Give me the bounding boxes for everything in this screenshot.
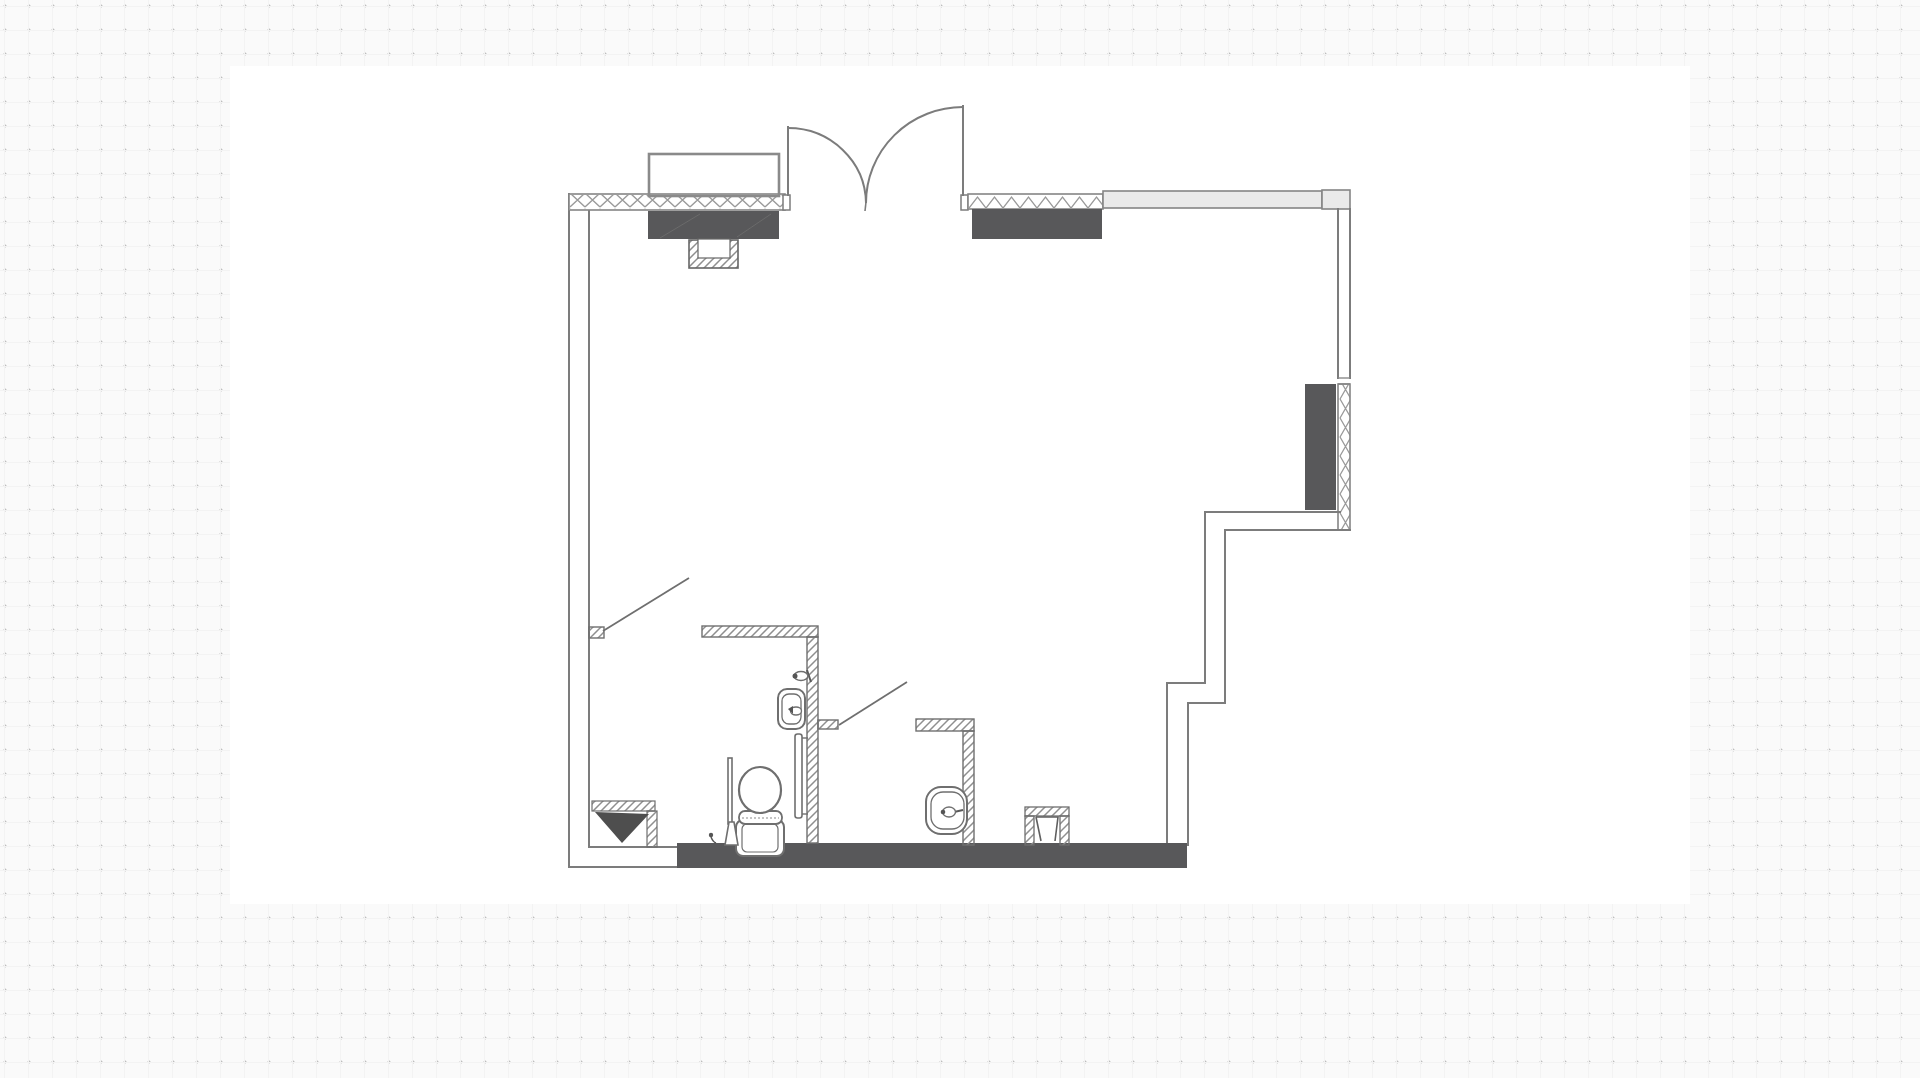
canvas-background[interactable] <box>0 0 1920 1078</box>
right-wall-window <box>1338 384 1350 530</box>
corner-shelf <box>592 801 657 847</box>
door-frame-right <box>961 195 968 210</box>
lintel-top-right <box>972 209 1102 239</box>
sink-1 <box>778 689 805 729</box>
wall-band-top-right <box>1103 190 1350 209</box>
door-arc-right <box>866 107 963 203</box>
door-meeting-tail <box>865 202 866 211</box>
toilet <box>736 767 784 856</box>
leader-line-1 <box>603 578 689 631</box>
door-frame-left <box>783 195 790 210</box>
leader-line-2 <box>839 682 907 725</box>
window-top-right <box>968 194 1103 209</box>
lintel-top-left <box>648 211 779 239</box>
right-wall <box>1338 209 1350 530</box>
double-entry-door <box>783 106 968 211</box>
wall-stub-left <box>589 627 604 638</box>
towel-rail <box>795 734 808 818</box>
floor-hook <box>709 833 716 843</box>
toilet-bowl <box>739 767 781 813</box>
balcony-outline <box>649 154 779 196</box>
wall-stub-right <box>818 720 838 729</box>
floor-plan-svg <box>0 0 1920 1078</box>
exterior-walls <box>569 194 678 867</box>
stool-niche <box>1025 807 1069 845</box>
door-arc-left <box>788 128 866 203</box>
dark-panel-right <box>1305 384 1336 510</box>
sink-2 <box>926 787 967 834</box>
duct-top-left <box>689 239 738 268</box>
floor-plan[interactable] <box>569 106 1350 868</box>
stepped-wall-right <box>1167 512 1350 845</box>
toilet-brush <box>725 758 738 845</box>
